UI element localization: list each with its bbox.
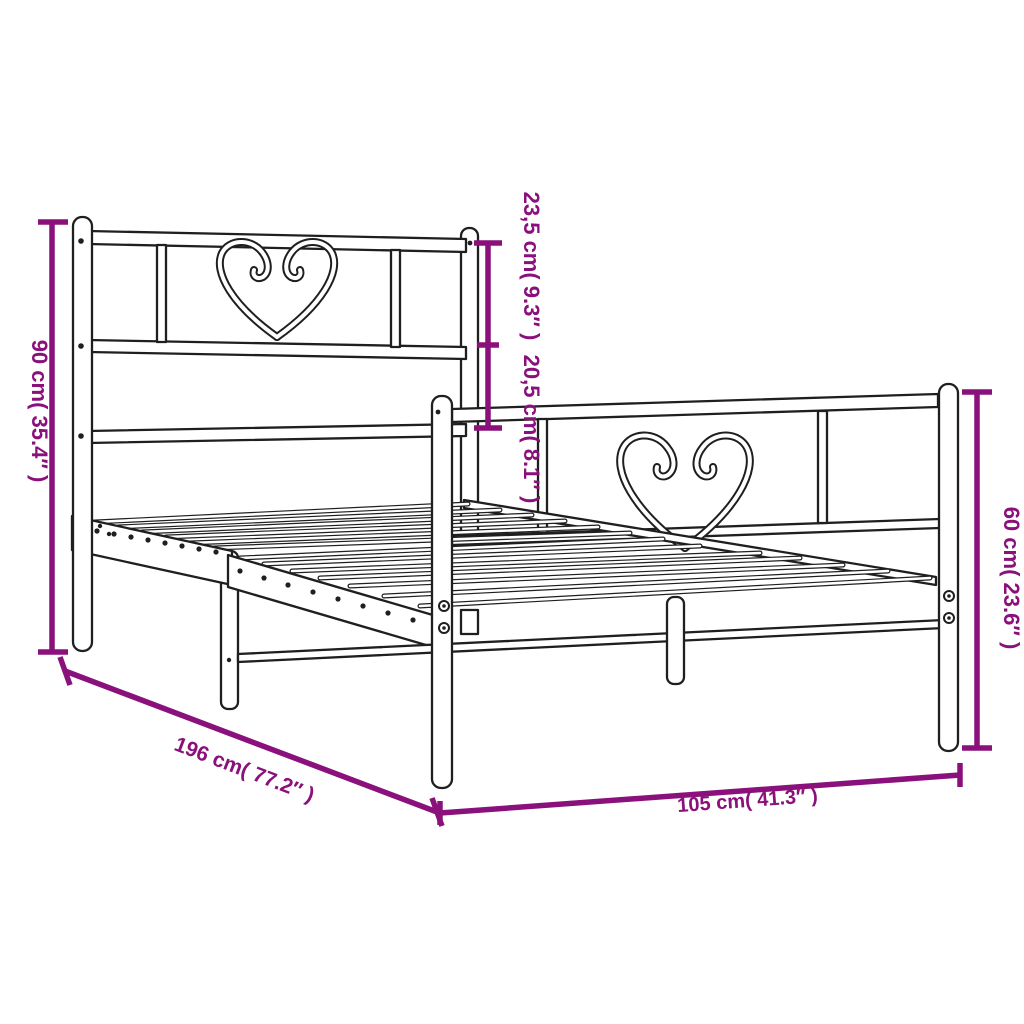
dimension-label-footboard-height: 60 cm( 23.6″ ) bbox=[999, 507, 1024, 650]
footboard-divider-right bbox=[818, 411, 827, 523]
dimension-label-bed-width: 105 cm( 41.3″ ) bbox=[677, 785, 819, 817]
dimension-label-bed-length: 196 cm( 77.2″ ) bbox=[171, 733, 317, 807]
dimension-label-headboard-top-section: 23,5 cm( 9.3″ ) bbox=[519, 192, 544, 341]
heart-motif-headboard bbox=[220, 242, 334, 337]
bed-frame bbox=[72, 217, 958, 788]
stretcher-bar bbox=[238, 620, 944, 662]
headboard-divider-left bbox=[157, 245, 166, 342]
dimension-diagram: 90 cm( 35.4″ ) 23,5 cm( 9.3″ ) 20,5 cm( … bbox=[0, 0, 1024, 1024]
bed-frame-illustration: 90 cm( 35.4″ ) 23,5 cm( 9.3″ ) 20,5 cm( … bbox=[0, 0, 1024, 1024]
headboard-middle-rail bbox=[88, 340, 466, 359]
footboard-left-post bbox=[432, 396, 452, 788]
headboard-top-rail bbox=[88, 231, 466, 252]
footboard-right-post bbox=[939, 384, 958, 751]
center-back-leg bbox=[667, 597, 684, 684]
headboard-lower-rail bbox=[88, 424, 466, 443]
headboard bbox=[88, 228, 478, 548]
rail-bracket bbox=[461, 610, 478, 634]
headboard-divider-right bbox=[391, 250, 400, 347]
dimension-label-headboard-mid-section: 20,5 cm( 8.1″ ) bbox=[519, 355, 544, 504]
dimension-footboard-height-lines bbox=[962, 392, 992, 748]
dimension-bed-length-lines bbox=[60, 657, 442, 826]
dimension-label-bed-height: 90 cm( 35.4″ ) bbox=[27, 340, 52, 483]
